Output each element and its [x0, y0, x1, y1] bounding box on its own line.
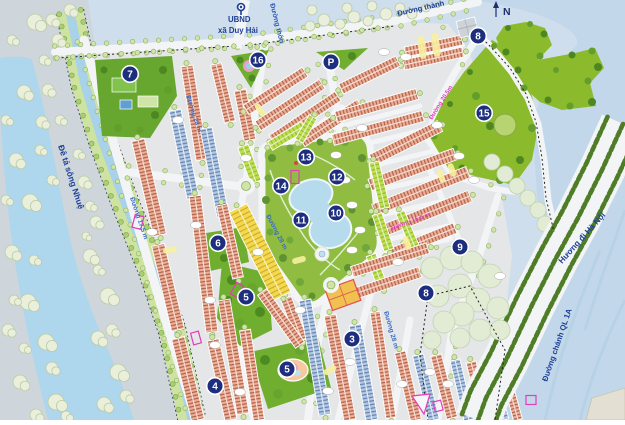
svg-text:3: 3	[349, 335, 355, 346]
svg-text:UBND: UBND	[228, 15, 251, 24]
svg-text:10: 10	[330, 209, 342, 220]
svg-text:14: 14	[275, 182, 287, 193]
svg-text:xã Duy Hải: xã Duy Hải	[218, 26, 258, 35]
svg-text:8: 8	[475, 32, 481, 43]
svg-text:15: 15	[478, 109, 490, 120]
svg-text:P: P	[328, 58, 335, 69]
svg-text:8: 8	[423, 289, 429, 300]
svg-text:7: 7	[127, 70, 133, 81]
svg-text:5: 5	[284, 365, 290, 376]
svg-text:6: 6	[215, 239, 221, 250]
svg-text:N: N	[503, 6, 511, 18]
svg-text:5: 5	[243, 293, 249, 304]
svg-text:11: 11	[296, 216, 307, 227]
svg-text:9: 9	[457, 243, 463, 254]
svg-text:16: 16	[252, 56, 264, 67]
svg-text:4: 4	[212, 382, 218, 393]
svg-text:13: 13	[300, 153, 312, 164]
svg-text:12: 12	[331, 173, 343, 184]
